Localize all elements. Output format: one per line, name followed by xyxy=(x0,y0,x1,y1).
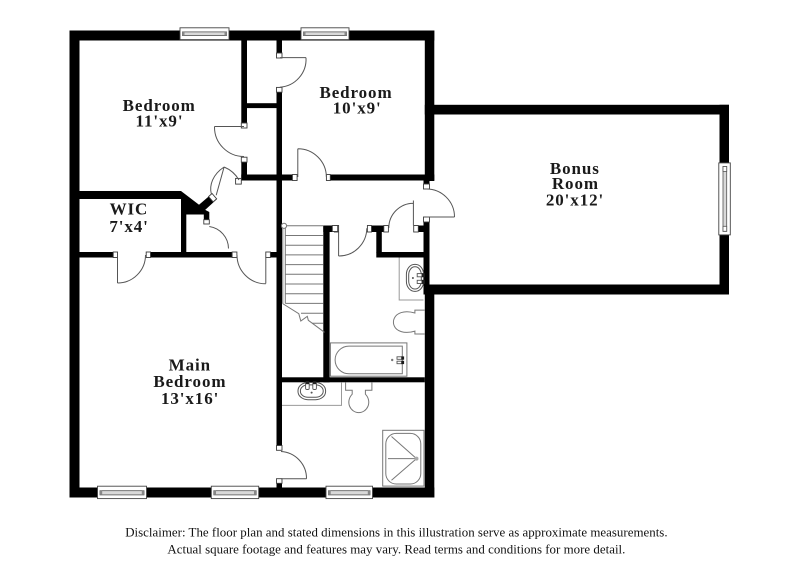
svg-text:11'x9': 11'x9' xyxy=(136,111,184,130)
svg-text:Actual square footage and feat: Actual square footage and features may v… xyxy=(167,542,625,556)
svg-text:13'x16': 13'x16' xyxy=(161,389,219,408)
svg-text:Disclaimer: The floor plan and: Disclaimer: The floor plan and stated di… xyxy=(125,526,667,540)
svg-text:WIC: WIC xyxy=(110,200,149,219)
svg-text:7'x4': 7'x4' xyxy=(109,217,148,236)
svg-text:20'x12': 20'x12' xyxy=(546,191,604,210)
svg-text:10'x9': 10'x9' xyxy=(333,98,382,117)
